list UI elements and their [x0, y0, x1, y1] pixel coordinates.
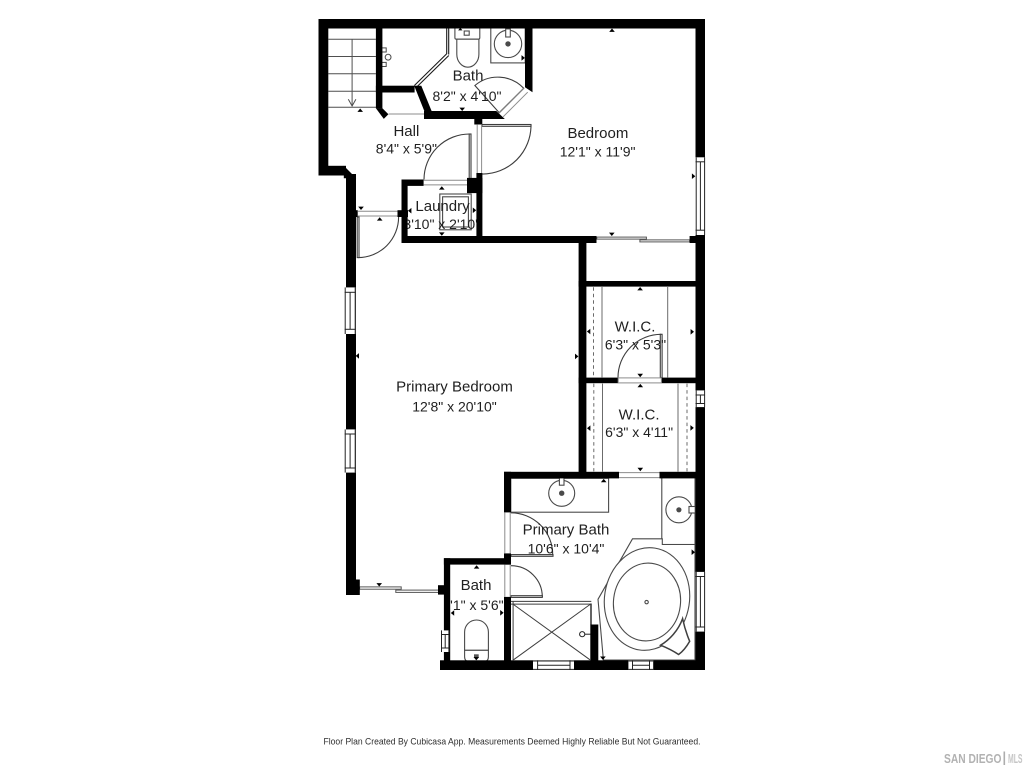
- svg-text:W.I.C.: W.I.C.: [619, 406, 660, 423]
- svg-text:W.I.C.: W.I.C.: [615, 319, 656, 336]
- svg-text:Primary Bath: Primary Bath: [523, 522, 610, 539]
- svg-text:3'10" x 2'10": 3'10" x 2'10": [403, 216, 480, 232]
- svg-text:Bath: Bath: [453, 68, 484, 85]
- svg-text:Bedroom: Bedroom: [567, 125, 628, 142]
- svg-text:10'6" x 10'4": 10'6" x 10'4": [528, 541, 605, 557]
- svg-text:8'2" x 4'10": 8'2" x 4'10": [433, 88, 502, 104]
- svg-text:SAN DIEGO: SAN DIEGO: [944, 752, 1002, 766]
- svg-text:Bath: Bath: [461, 577, 492, 594]
- svg-text:Hall: Hall: [393, 123, 419, 140]
- svg-text:Floor Plan Created By Cubicasa: Floor Plan Created By Cubicasa App. Meas…: [324, 737, 701, 747]
- svg-text:5'1" x 5'6": 5'1" x 5'6": [442, 597, 503, 613]
- svg-text:12'8" x 20'10": 12'8" x 20'10": [412, 399, 497, 415]
- svg-text:Primary Bedroom: Primary Bedroom: [396, 379, 513, 396]
- svg-text:8'4" x 5'9": 8'4" x 5'9": [376, 141, 437, 157]
- svg-text:12'1" x 11'9": 12'1" x 11'9": [560, 143, 636, 159]
- svg-text:6'3" x 5'3": 6'3" x 5'3": [605, 337, 666, 353]
- svg-text:Laundry: Laundry: [415, 198, 470, 215]
- svg-text:6'3" x 4'11": 6'3" x 4'11": [605, 424, 673, 440]
- svg-text:MLS: MLS: [1008, 752, 1023, 766]
